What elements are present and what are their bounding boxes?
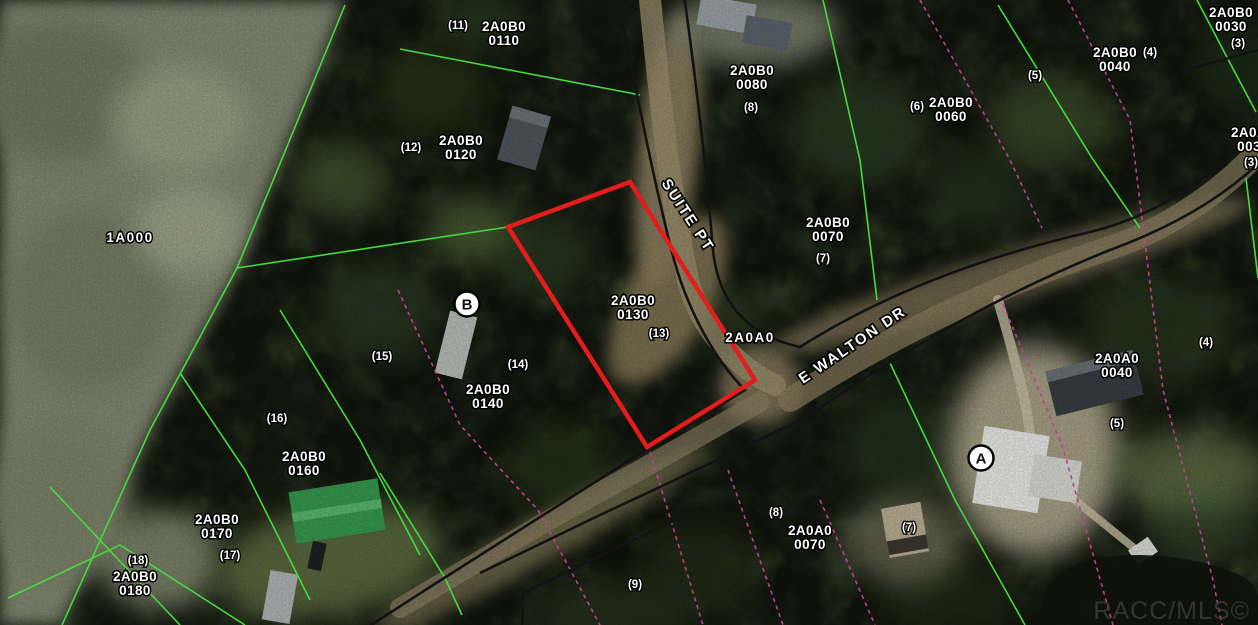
parcel-label-0140: 2A0B00140: [466, 382, 510, 411]
parcel-label-0160: 2A0B00160: [282, 449, 326, 478]
lot-label: (6): [910, 101, 924, 113]
parcel-label-0130-subject: 2A0B00130: [611, 293, 655, 322]
lot-label: (4): [1199, 337, 1213, 349]
parcel-label-0170: 2A0B00170: [195, 512, 239, 541]
parcel-label-0110: 2A0B00110: [482, 19, 526, 48]
svg-text:A: A: [976, 451, 987, 468]
lot-label: (3): [1231, 38, 1245, 50]
lot-label: (14): [508, 359, 529, 371]
lot-label: (4): [1143, 47, 1157, 59]
svg-text:B: B: [462, 297, 473, 314]
lot-label-subject: (13): [649, 328, 670, 340]
parcel-label-a0040: 2A0A00040: [1095, 351, 1139, 380]
lot-label: (3): [1244, 157, 1258, 169]
attribution-watermark: RACC/MLS©: [1093, 597, 1250, 625]
lot-label: (7): [816, 253, 830, 265]
area-label-1a000: 1A000: [106, 230, 153, 245]
marker-a: A: [969, 446, 994, 471]
lot-label: (9): [628, 579, 642, 591]
lot-label: (5): [1028, 70, 1042, 82]
lot-label: (5): [1110, 418, 1124, 430]
lot-label: (18): [128, 555, 149, 567]
lot-label: (17): [220, 550, 241, 562]
parcel-label-0070: 2A0B00070: [806, 215, 850, 244]
lot-label: (15): [372, 351, 393, 363]
lot-label: (8): [769, 507, 783, 519]
lot-label: (12): [401, 142, 422, 154]
parcel-label-a0070: 2A0A00070: [788, 523, 832, 552]
lot-label: (11): [448, 20, 468, 32]
mls-map-view: 2A0B00110 2A0B00120 2A0B00080 2A0B00060 …: [0, 0, 1258, 625]
lot-label: (16): [267, 413, 288, 425]
area-label-2a0a0: 2A0A0: [725, 330, 775, 345]
parcel-label-0120: 2A0B00120: [439, 133, 483, 162]
parcel-label-0060: 2A0B00060: [929, 95, 973, 124]
marker-b: B: [455, 292, 480, 317]
parcel-label-0040: 2A0B00040: [1093, 45, 1137, 74]
parcel-label-0180: 2A0B00180: [113, 569, 157, 598]
lot-label: (7): [902, 522, 916, 534]
lot-label: (8): [744, 102, 758, 114]
aerial-map-canvas: 2A0B00110 2A0B00120 2A0B00080 2A0B00060 …: [0, 0, 1258, 625]
parcel-label-0030: 2A0B00030: [1209, 5, 1253, 34]
parcel-label-0080: 2A0B00080: [730, 63, 774, 92]
